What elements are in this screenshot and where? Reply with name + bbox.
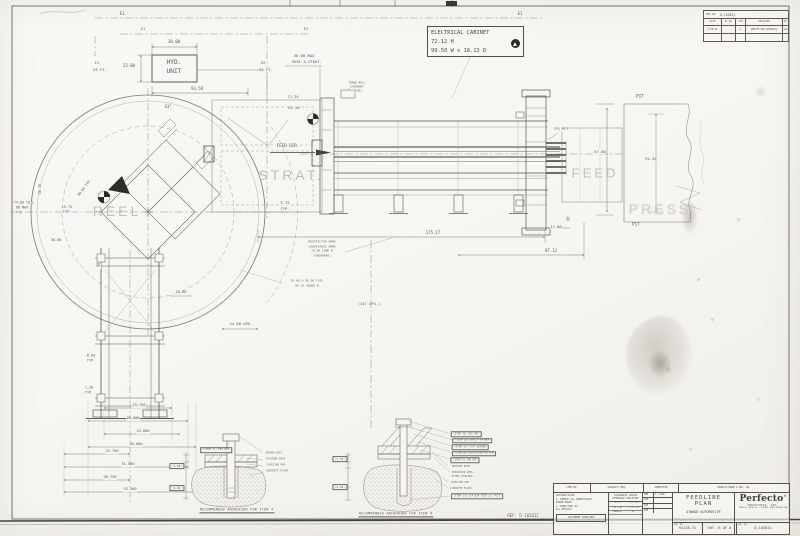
dimension-label: 36.50 [39,183,43,195]
dimension-label: 25.750 [105,450,119,454]
parts-col-mfr: MANUFACTURER & MDL. NO. [679,484,789,492]
dimension-label: 74.00 COIL [13,201,34,204]
cabinet-line2: 72.12 H [431,38,520,47]
dimension-label: 51.500 [121,463,135,467]
dimension-label: UNIT [166,69,182,75]
dwg-no-label: DWG NO. [706,13,717,16]
dimension-label: 65.26 [288,106,300,110]
dimension-label: (STEEL) [351,90,364,93]
ghost-label: PRESS [628,202,691,216]
title-bottom-strip: ORD. NO. 92128-31 SHT. 8 OF 8 DWG. NO. D… [673,522,789,535]
ghost-label: STRAT. [258,168,324,182]
dimension-label: 43° [164,105,172,109]
tolerance-grid: .X ±.1 1 PL ±.5 .XX ±.01 2 PL ±.13 ANGLE… [609,501,642,515]
ghost-label: FEED [571,167,619,180]
dimension-label: CPLG NO.2 [553,129,568,132]
dimension-label: HYD. [166,60,182,66]
dimension-label: CONCRETE FLOOR [266,471,289,474]
cabinet-line1: ELECTRICAL CABINET [431,29,520,38]
dimension-label: 24.00 APX. [229,322,253,326]
dimension-label: 53.500 [123,488,137,492]
dimension-label: OD MAX [15,206,28,209]
dimension-label: AFTER LEVELING [451,475,473,478]
customer-name: ATWOOD AUTOMOTIVE [673,510,734,514]
dimension-label: E2 [260,61,266,65]
drawing-number-cell: DWG. NO. D-103021 [737,523,789,535]
dimension-label: LEVELING PAD [266,465,286,468]
dimension-label: 55 FT. [93,68,108,72]
dimension-label: E1 [119,12,125,16]
anchor-detail-2 [345,419,454,511]
dimension-label: (ITEM 16) HEX NUT [451,431,482,437]
dimension-label: TYP. [15,211,24,214]
anchor-detail-1 [183,434,266,507]
dimension-label: 175.17 [425,231,440,235]
detail-caption: RECOMMENDED ANCHORING FOR ITEM ① [199,508,274,513]
dimension-label: 87.12 [544,249,557,253]
dimension-label: (8.00) [332,484,347,490]
drawing-title-line2: PLAN [673,501,734,507]
dimension-label: PIT [631,224,640,229]
feed-unit [516,90,622,235]
dimension-label: 30.00 [50,239,62,243]
dimension-label: PIT [635,96,644,101]
dimension-label: (ITEM 8) 5/8-11 UNC HD SCR [452,451,496,457]
dimension-label: 1.20 [84,386,93,389]
dimension-label: REF: D-102812 [507,514,539,518]
rev-col-date: DATE [704,19,722,25]
dwg-no-value: D-103021 [720,13,735,17]
brand-logo: Perfecto® [735,494,791,504]
dimension-label: TYP. [62,211,72,215]
dimension-label: 22.00 [122,64,135,68]
dimension-label: 18.00 [175,291,187,295]
dimension-label: 80.25 SWING R [295,284,319,287]
dimension-label: (ITEM 9) JAM NUT [450,457,479,463]
dimension-label: 5.75 [280,201,290,205]
parts-col-qty: QUANTITY REQ. [591,484,644,492]
dimension-label: 36.00 MAX [293,54,315,58]
dimension-label: ① [565,217,571,223]
tolerance-cell: TOLERANCES UNLESS OTHERWISE SPECIFIED .X… [609,493,643,535]
dimension-label: (OVERHEAD) [312,254,331,257]
dimension-label: 46.000 [129,443,143,447]
parts-col-item: ITEM NO. [554,484,591,492]
dimension-label: 26.750 [103,476,117,480]
dimension-label: 55 FT. [259,68,274,72]
dimension-label: TYP. [280,207,290,211]
customer-supplied-box: CUSTOMER SUPPLIED [556,514,606,522]
dimension-label: 17.00 [550,225,562,229]
revision-dwg-row: DWG NO. D-103021 [704,11,788,19]
drawing-linework [0,0,800,536]
dimension-label: E1 [517,12,523,16]
dimension-label: (1.50) [332,456,347,462]
dimension-label: 72.24 [287,95,299,99]
dimension-label: CONCRETE FLOOR [450,487,472,490]
dimension-label: 39.500 [126,417,140,421]
dimension-label: (ITEM 14) FLAT WASHER [452,444,489,450]
rev-col-by: BY [783,19,788,25]
dimension-label: (4.00) [169,463,184,469]
dimension-label: MACHINE BASE [451,465,470,468]
rev-col-ecno: EC NO [722,19,736,25]
dimension-label: E1 [303,28,308,32]
sheet-number-cell: SHT. 8 OF 8 [703,523,737,535]
title-block: ITEM NO. QUANTITY REQ. SUBMITTED MANUFAC… [553,483,790,535]
dimension-label: REEL & STRAT. [292,60,323,64]
machine-notes-cell: MACHINE NOTES 1. REMOVE ALL UNNECESSARY … [554,493,609,535]
dimension-label: E1 [94,61,100,65]
revision-row: 2-28-92 A UPDATE PER APPROVAL JAS [704,26,788,34]
dimension-label: 67.00 [594,150,606,154]
centroid-symbol [98,191,110,203]
rev-col-sym: SYM [736,19,746,25]
parts-header-row: ITEM NO. QUANTITY REQ. SUBMITTED MANUFAC… [554,484,789,493]
dimension-label: (147 APX.) [357,302,381,306]
dimension-label: (6.00) [169,485,184,491]
dimension-label: TYP. [86,359,95,362]
revision-table: DWG NO. D-103021 DATE EC NO SYM REVISION… [703,10,789,42]
order-number-cell: ORD. NO. 92128-31 [673,523,703,535]
dimension-label: LEVELING PAD [450,481,469,484]
drawing-sheet: ELECTRICAL CABINET 72.12 H 99.50 W x 18.… [0,0,800,536]
dimension-label: MACHINE BASE [266,459,286,462]
dimension-label: E1 [140,28,145,32]
dimension-label: (ITEM 17) HEX NUT [200,447,232,453]
dimension-label: 38.00 [167,40,180,44]
parts-col-submitted: SUBMITTED [644,484,679,492]
detail-caption: RECOMMENDED ANCHORING FOR ITEM ② [358,512,433,517]
dimension-label: (ITEM 15) SAFETY WASHER [452,438,492,444]
dimension-label: ANCHOR BOLT [265,453,283,456]
dimension-label: (ITEM 13) 3/4 DIA STUD (2) PLCS [451,493,503,499]
revision-row-empty [704,34,788,41]
ghost-label: REEL [92,204,142,218]
dimension-label: 8.03 [86,354,95,357]
dimension-label: FEED DIR. [276,144,300,148]
dimension-label: 93.50 [190,87,203,91]
cabinet-line3: 99.50 W x 18.13 D [431,47,520,56]
dimension-label: 23.000 [136,430,150,434]
rev-col-revision: REVISION [746,19,783,25]
dimension-label: 92.38 [645,157,657,161]
dimension-label: 19.750 [132,404,146,408]
revision-header-row: DATE EC NO SYM REVISION BY [704,19,788,26]
warning-icon [511,39,520,48]
electrical-cabinet-callout: ELECTRICAL CABINET 72.12 H 99.50 W x 18.… [427,26,524,57]
feed-rails [312,86,560,214]
dimension-label: ② [95,263,101,269]
approvals-cell: DRNP. LACE CHK APP APP [643,493,673,535]
dimension-label: TYP. [84,391,93,394]
